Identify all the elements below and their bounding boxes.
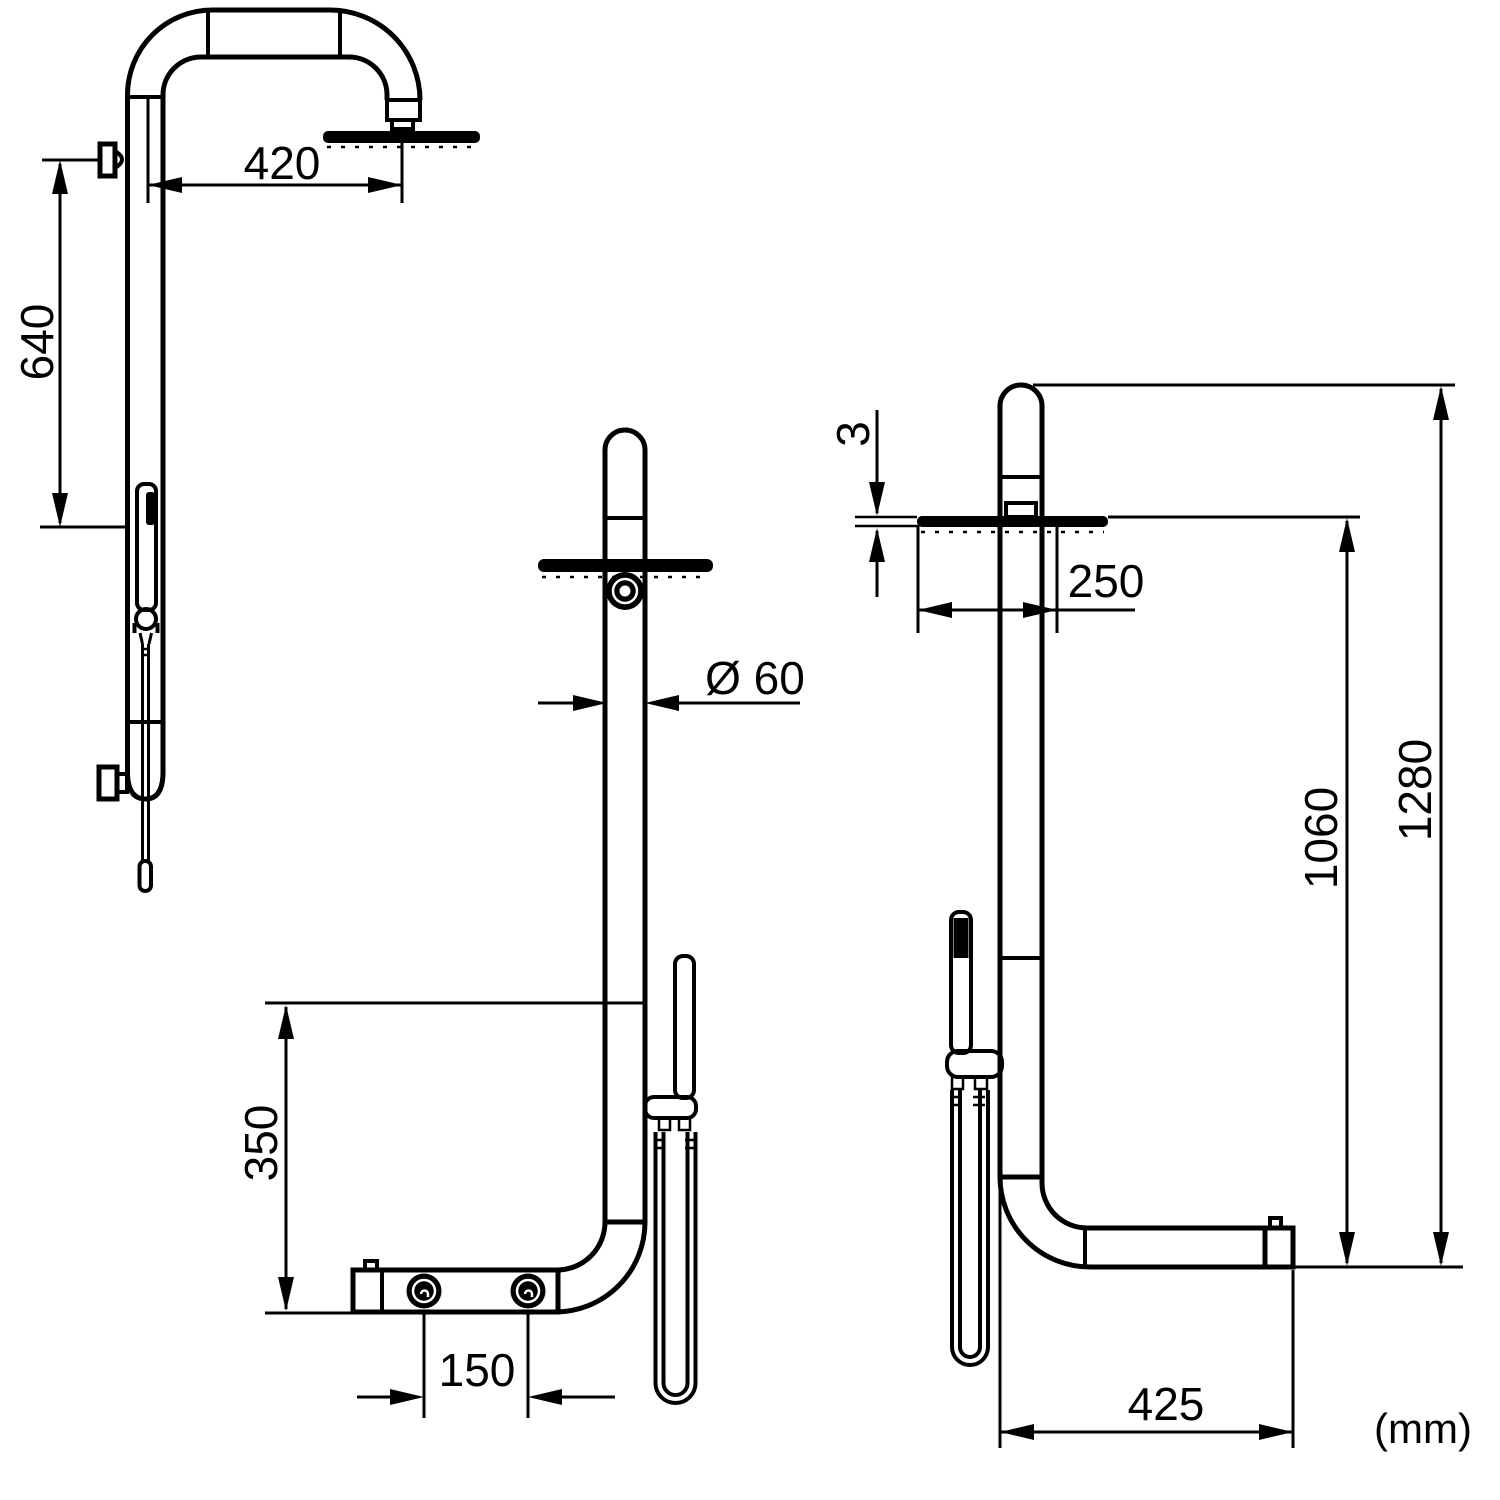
- valve-knob-left: [407, 1274, 442, 1309]
- dim-label-3: 3: [827, 421, 879, 447]
- hose-loop-outer: [952, 1090, 988, 1365]
- hand-shower-grip-dark: [954, 918, 969, 958]
- arrowhead-right: [368, 177, 402, 193]
- arrowhead-down: [278, 1277, 294, 1311]
- dim-head-thickness-3: 3: [827, 410, 885, 597]
- valve-body-nub: [365, 1261, 377, 1270]
- dim-valve-spacing-150: 150: [357, 1313, 615, 1418]
- view-front: Ø 60 350 150: [235, 430, 805, 1418]
- dim-label-425: 425: [1128, 1378, 1205, 1430]
- dim-label-420: 420: [244, 137, 321, 189]
- ball-joint-center: [620, 586, 631, 597]
- head-edge-ext-lines: [855, 517, 917, 526]
- view-side-right: 3 250: [827, 385, 1472, 1452]
- dim-label-350: 350: [235, 1105, 287, 1182]
- arrowhead-down: [1339, 1232, 1355, 1266]
- dim-label-1280: 1280: [1389, 739, 1441, 841]
- supply-fitting-top: [100, 144, 115, 176]
- dim-label-250: 250: [1068, 555, 1145, 607]
- arrowhead-right: [1259, 1424, 1293, 1440]
- dim-total-height-1280: 1280: [1389, 386, 1449, 1266]
- end-cap-nub: [1270, 1218, 1281, 1228]
- arrowhead-right: [390, 1389, 424, 1405]
- wand-taper: [140, 633, 152, 644]
- technical-drawing-page: 420 640: [0, 0, 1500, 1500]
- bend-inner-arc: [1042, 1183, 1087, 1228]
- dim-head-height-1060: 1060: [1295, 518, 1355, 1266]
- wand-tip: [140, 861, 152, 891]
- arrowhead-right: [573, 695, 607, 711]
- arrowhead-up: [869, 528, 885, 562]
- unit-note: (mm): [1374, 1405, 1472, 1452]
- dim-pole-diameter-60: Ø 60: [538, 652, 805, 711]
- arrowhead-up: [278, 1005, 294, 1039]
- dim-arm-reach-420: 420: [148, 98, 402, 203]
- pole-outer-contour: [128, 10, 421, 775]
- arrowhead-left: [918, 602, 952, 618]
- supply-fitting-bottom: [99, 767, 117, 799]
- dim-label-diameter: Ø 60: [705, 652, 805, 704]
- head-attachment: [1006, 503, 1036, 517]
- pole-bottom-cap: [128, 772, 164, 799]
- shower-column-drawing: 420 640: [0, 0, 1500, 1500]
- arrowhead-left: [645, 695, 679, 711]
- hose-loop-inner: [960, 1090, 980, 1357]
- arrowhead-up: [1433, 386, 1449, 420]
- hand-shower-handle: [675, 956, 694, 1098]
- dim-head-diameter-250: 250: [918, 522, 1144, 633]
- bend-inner-arc: [556, 1222, 605, 1270]
- dim-label-640: 640: [11, 304, 63, 381]
- arrowhead-down: [1433, 1232, 1449, 1266]
- hand-shower-holder: [645, 1097, 696, 1118]
- shower-head-disc: [538, 559, 713, 572]
- shower-head-disc: [917, 516, 1108, 527]
- arrowhead-down: [869, 482, 885, 516]
- hose-ring-marks: [654, 1140, 697, 1148]
- dim-label-150: 150: [439, 1344, 516, 1396]
- wand-tube: [143, 644, 149, 861]
- arm-end-cap: [1265, 1228, 1293, 1267]
- dim-head-to-hand-shower-640: 640: [11, 160, 127, 527]
- hand-shower-grip-dark: [146, 492, 155, 525]
- head-neck: [392, 120, 413, 129]
- arrowhead-up: [1339, 518, 1355, 552]
- hand-shower-holder: [947, 1051, 1002, 1077]
- supply-fitting-bottom-connector: [117, 774, 127, 792]
- pole-contour: [605, 430, 645, 1222]
- head-attachment: [387, 100, 420, 120]
- view-side-left: 420 640: [11, 10, 480, 891]
- arrowhead-left: [528, 1389, 562, 1405]
- hose-loop-inner: [664, 1132, 688, 1395]
- dim-base-depth-425: 425: [1000, 1180, 1293, 1448]
- arrowhead-down: [52, 493, 68, 527]
- dim-label-1060: 1060: [1295, 787, 1347, 889]
- valve-knob-right: [511, 1274, 546, 1309]
- dim-hand-shower-drop-350: 350: [235, 1003, 645, 1313]
- arrowhead-left: [1000, 1424, 1034, 1440]
- arrowhead-up: [52, 160, 68, 194]
